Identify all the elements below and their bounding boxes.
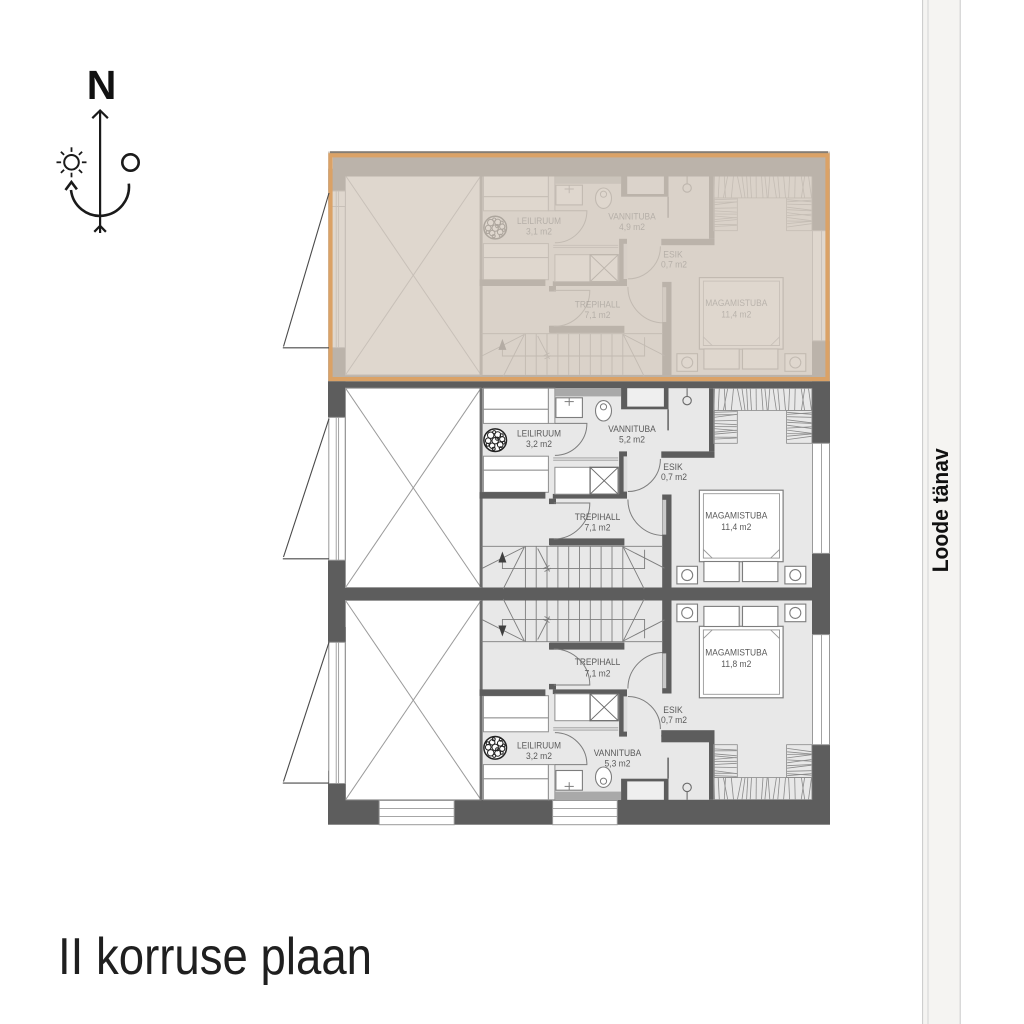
- svg-text:MAGAMISTUBA: MAGAMISTUBA: [705, 647, 768, 658]
- svg-text:Loode tänav: Loode tänav: [928, 448, 953, 572]
- svg-text:3,1 m2: 3,1 m2: [526, 225, 552, 236]
- svg-text:7,1 m2: 7,1 m2: [585, 309, 611, 320]
- svg-text:VANNITUBA: VANNITUBA: [594, 747, 642, 758]
- svg-text:MAGAMISTUBA: MAGAMISTUBA: [705, 297, 768, 308]
- svg-text:3,2 m2: 3,2 m2: [526, 750, 552, 761]
- svg-text:5,3 m2: 5,3 m2: [605, 758, 631, 769]
- svg-text:5,2 m2: 5,2 m2: [619, 433, 645, 444]
- svg-text:0,7 m2: 0,7 m2: [661, 471, 687, 482]
- svg-text:7,1 m2: 7,1 m2: [585, 522, 611, 533]
- svg-text:TREPIHALL: TREPIHALL: [575, 299, 621, 310]
- svg-text:MAGAMISTUBA: MAGAMISTUBA: [705, 509, 768, 520]
- svg-text:TREPIHALL: TREPIHALL: [575, 511, 621, 522]
- svg-text:LEILIRUUM: LEILIRUUM: [517, 739, 561, 750]
- svg-text:LEILIRUUM: LEILIRUUM: [517, 215, 561, 226]
- svg-text:II korruse plaan: II korruse plaan: [58, 928, 372, 986]
- svg-text:4,9 m2: 4,9 m2: [619, 221, 645, 232]
- svg-text:7,1 m2: 7,1 m2: [585, 667, 611, 678]
- svg-text:N: N: [87, 62, 117, 108]
- svg-text:11,4 m2: 11,4 m2: [721, 308, 751, 319]
- svg-text:0,7 m2: 0,7 m2: [661, 714, 687, 725]
- svg-text:11,8 m2: 11,8 m2: [721, 658, 751, 669]
- svg-text:LEILIRUUM: LEILIRUUM: [517, 428, 561, 439]
- svg-text:3,2 m2: 3,2 m2: [526, 438, 552, 449]
- svg-text:0,7 m2: 0,7 m2: [661, 258, 687, 269]
- svg-text:11,4 m2: 11,4 m2: [721, 521, 751, 532]
- svg-text:TREPIHALL: TREPIHALL: [575, 656, 621, 667]
